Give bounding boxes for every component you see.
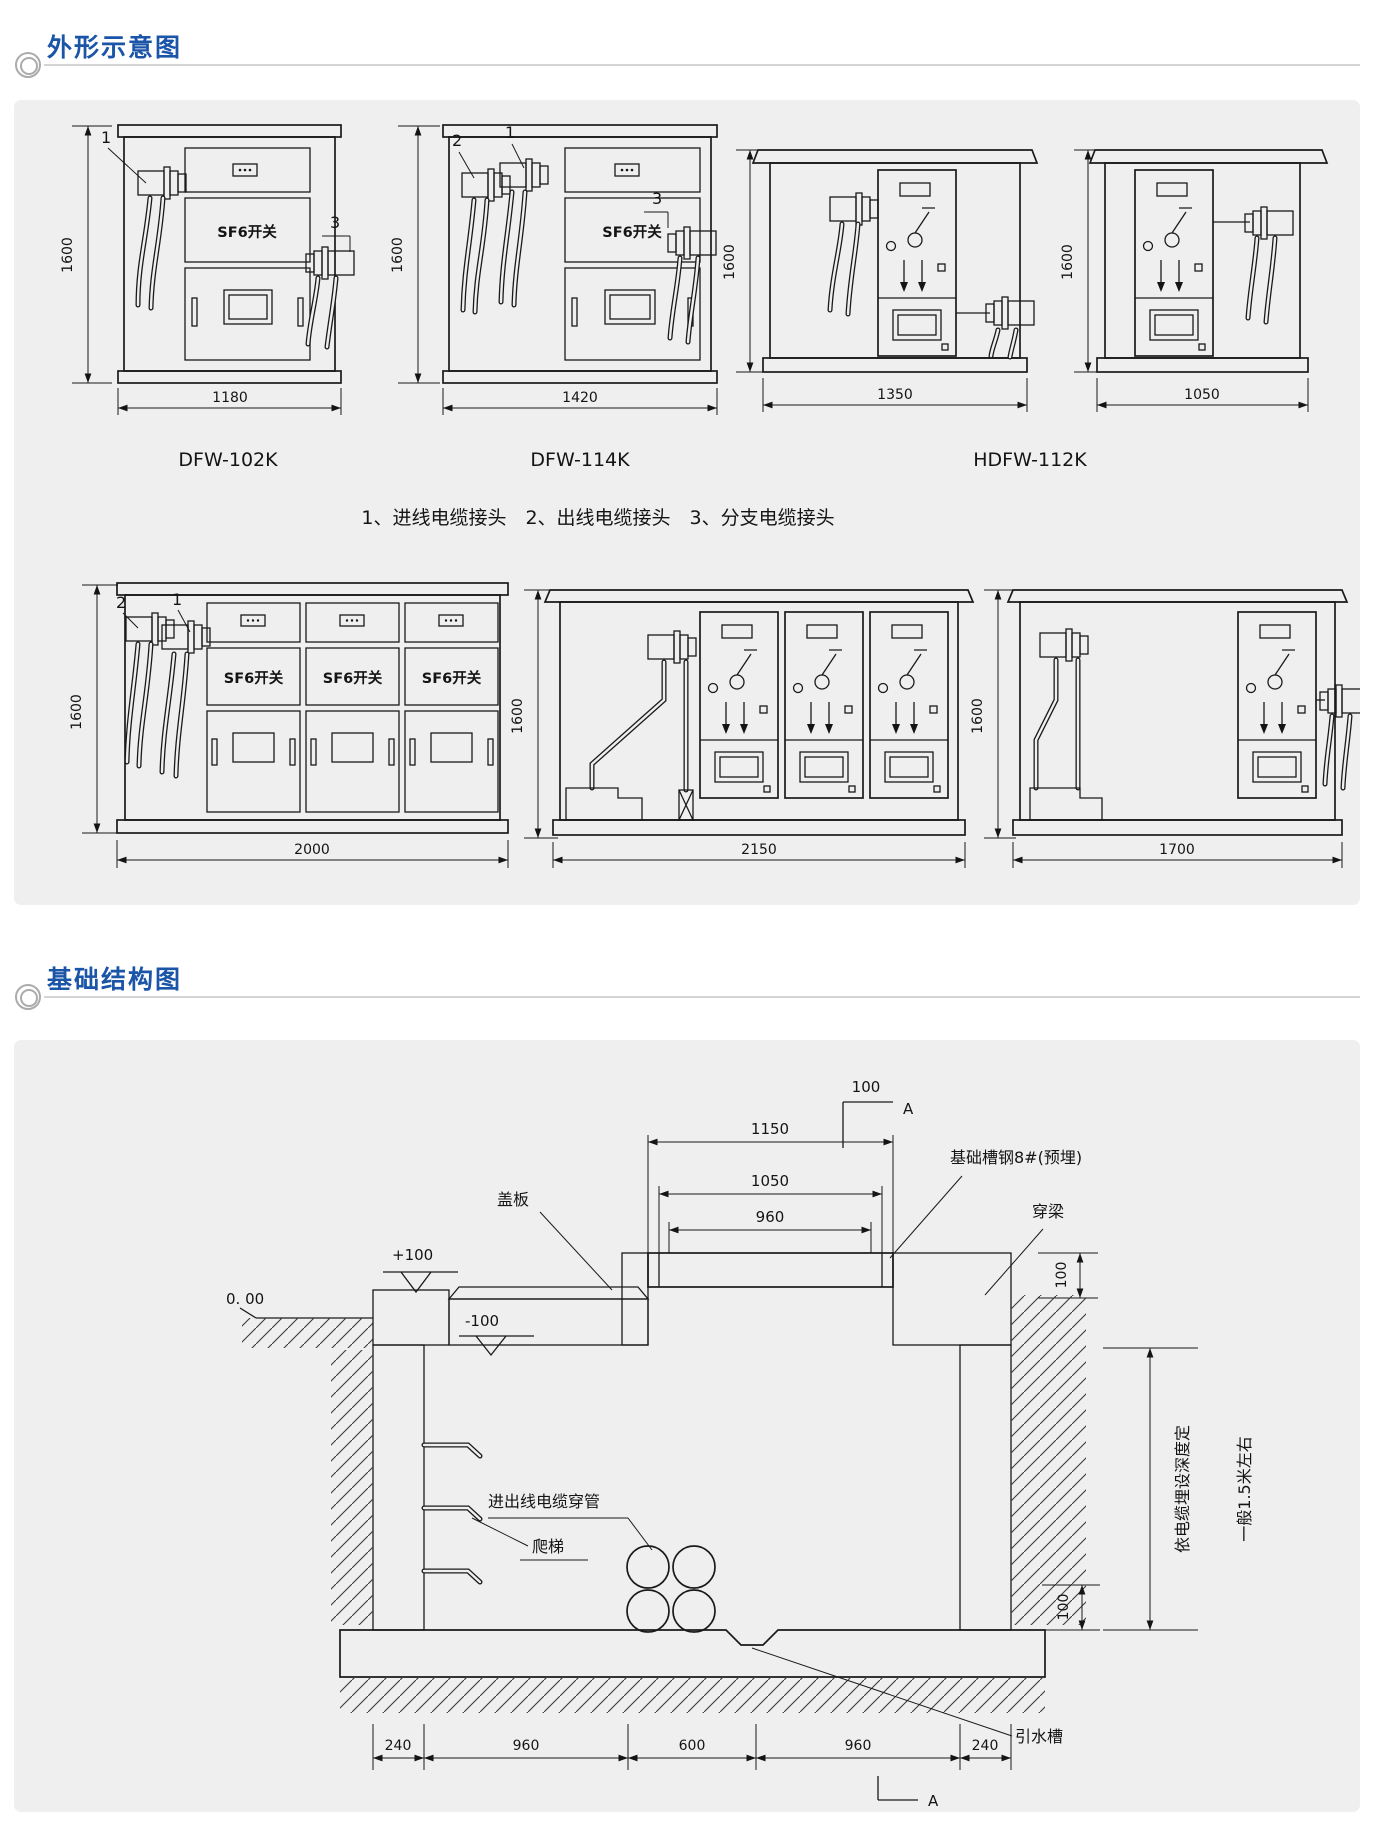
sf6-switch-label: SF6开关 [224,669,284,687]
outline-section-title: 外形示意图 [47,28,182,64]
dim-240-left: 240 [385,1738,412,1754]
cable-legend: 1、进线电缆接头 2、出线电缆接头 3、分支电缆接头 [361,507,834,529]
cable-terminal-box [1030,788,1102,820]
channel-steel-label: 基础槽钢8#(预埋) [950,1148,1082,1167]
incoming-cable-connector [592,631,696,790]
depth-note-1: 依电缆埋设深度定 [1173,1425,1192,1553]
incoming-cable-connector [138,167,186,308]
row2-cabinet-2000: 1600 SF6开关 SF6开关 [69,583,508,868]
switch-module [1238,612,1316,798]
foundation-panel: 100 A 1150 1050 960 0. 00 +100 盖板 [14,1040,1360,1812]
top-dimensions: 1150 1050 960 [648,1120,893,1253]
incoming-cable-connector [162,621,210,776]
dim-1150: 1150 [751,1120,789,1138]
dim-1050: 1050 [751,1172,789,1190]
foundation-section-title: 基础结构图 [47,960,182,996]
switch-module [870,612,948,798]
cable-terminal-box [566,788,642,820]
depth-note-2: 一般1.5米左右 [1235,1436,1254,1541]
dim-height: 1600 [510,698,526,734]
callout-3: 3 [652,189,662,208]
dim-240-right: 240 [972,1738,999,1754]
dim-width: 1050 [1184,387,1220,403]
section-mark-bottom: A [878,1776,939,1810]
dim-width: 1350 [877,387,913,403]
dim-960-left: 960 [513,1738,540,1754]
cabinet-dfw-102k: 1600 SF6开关 1 3 1180 DFW-102K [60,125,354,471]
switch-module [1135,170,1213,356]
dim-960-right: 960 [845,1738,872,1754]
bottom-slab: 引水槽 [340,1630,1063,1746]
right-wall [960,1295,1086,1630]
cable-conduits: 进出线电缆穿管 [488,1492,715,1632]
switch-module [700,612,778,798]
branch-cable-connector [956,297,1034,357]
bottom-dimensions: 240 960 600 960 240 [373,1724,1011,1770]
ground-level: 0. 00 [226,1290,373,1348]
switch-module [878,170,956,356]
dim-100-bottom: 100 [1056,1594,1072,1621]
dim-height: 1600 [970,698,986,734]
model-label: DFW-114K [530,449,630,471]
outgoing-cable-connector [126,613,174,766]
branch-cable-connector [668,227,716,342]
dim-width: 2000 [294,842,330,858]
dim-width: 1700 [1159,842,1195,858]
cover-plate-label: 盖板 [497,1190,529,1209]
level-plus-100: +100 [383,1246,458,1292]
dim-height: 1600 [69,694,85,730]
row2-cabinet-2150: 1600 2150 [510,590,973,868]
level-minus-label: -100 [465,1312,499,1330]
branch-cable-connector [1316,685,1360,788]
sf6-switch-label: SF6开关 [217,223,277,241]
dim-600: 600 [679,1738,706,1754]
callout-2: 2 [452,131,462,150]
section-divider [44,996,1360,998]
dim-960: 960 [756,1208,785,1226]
sf6-switch-label: SF6开关 [422,669,482,687]
conduit-label: 进出线电缆穿管 [488,1492,600,1511]
callout-1: 1 [172,590,182,609]
drain-label: 引水槽 [1015,1727,1063,1746]
outline-section-header: 外形示意图 [0,28,1373,108]
cabinet-dfw-114k: 1600 SF6开关 2 1 3 [390,123,717,471]
model-label: HDFW-112K [973,449,1087,471]
cabinet-hdfw-112k-left: 1600 1350 HDFW-112K [722,150,1087,471]
section-letter-a-bottom: A [928,1792,939,1810]
beam-height-dim: 100 [1038,1253,1098,1298]
level-minus-100: -100 [459,1312,534,1355]
section-mark-top: 100 A [843,1078,914,1148]
dim-height: 1600 [722,244,738,280]
branch-cable-connector [1213,207,1293,322]
callout-3: 3 [330,213,340,232]
level-zero: 0. 00 [226,1290,264,1308]
callout-1: 1 [505,123,515,142]
dim-100-right: 100 [1054,1262,1070,1289]
ladder: 爬梯 [424,1445,588,1582]
depth-dimension: 依电缆埋设深度定 一般1.5米左右 [1103,1348,1254,1630]
dim-width: 1180 [212,390,248,406]
cabinet-hdfw-112k-right: 1600 1050 [1060,150,1327,412]
sf6-bay-2: SF6开关 [306,603,399,812]
incoming-cable-connector [830,193,878,314]
switch-module [785,612,863,798]
dim-height: 1600 [1060,244,1076,280]
sf6-switch-label: SF6开关 [323,669,383,687]
section-bullet-icon [15,984,41,1010]
branch-cable-connector [306,247,354,347]
outline-panel: 1600 SF6开关 1 3 1180 DFW-102K [14,100,1360,905]
incoming-cable-connector [1036,629,1088,788]
row2-cabinet-1700: 1600 1700 [970,590,1360,868]
sf6-bay-3: SF6开关 [405,603,498,812]
dim-width: 2150 [741,842,777,858]
callout-2: 2 [116,593,126,612]
sf6-bay-1: SF6开关 [207,603,300,812]
section-dim-100: 100 [852,1078,881,1096]
model-label: DFW-102K [178,449,278,471]
dim-height: 1600 [60,237,76,273]
level-plus-label: +100 [392,1246,433,1264]
dim-width: 1420 [562,390,598,406]
ladder-label: 爬梯 [532,1537,564,1556]
callout-1: 1 [101,128,111,147]
trench-slab [622,1253,1011,1345]
section-divider [44,64,1360,66]
incoming-cable-connector [500,159,548,305]
foundation-section-header: 基础结构图 [0,960,1373,1040]
beam-label: 穿梁 [1032,1202,1064,1221]
section-bullet-icon [15,52,41,78]
dim-height: 1600 [390,237,406,273]
section-letter-a: A [903,1100,914,1118]
sf6-switch-label: SF6开关 [602,223,662,241]
